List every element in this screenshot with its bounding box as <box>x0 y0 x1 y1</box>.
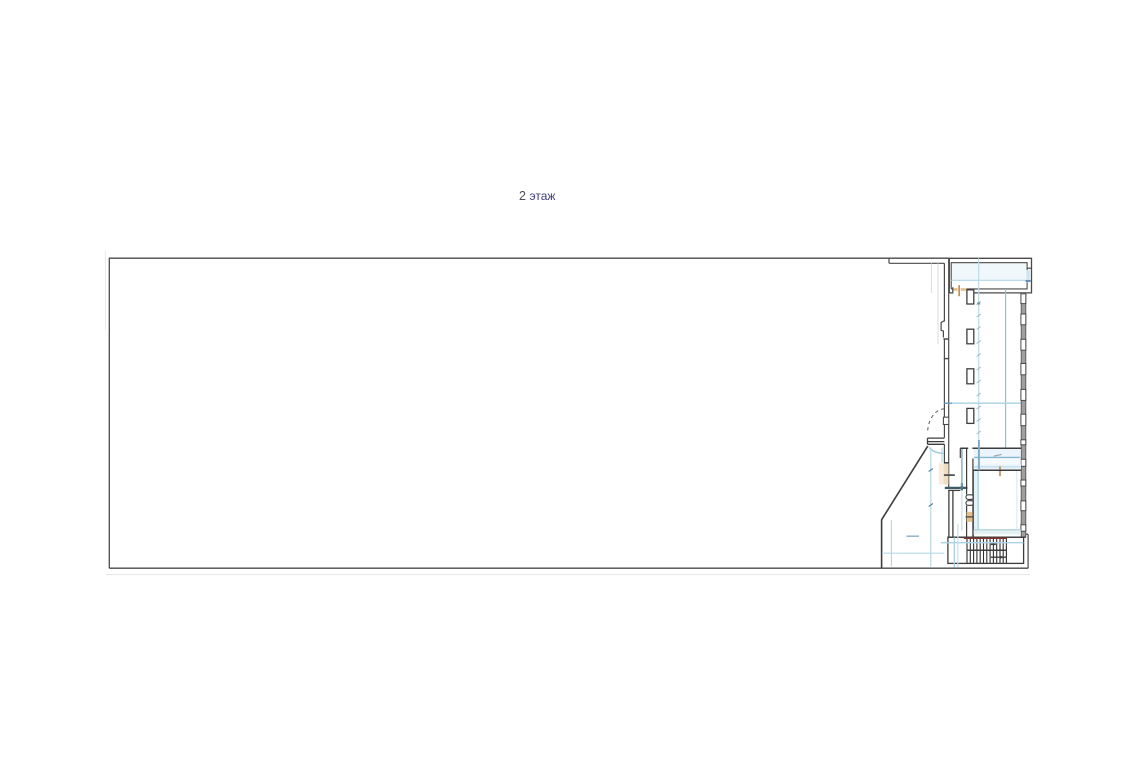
svg-text:этаж: этаж <box>530 189 556 203</box>
svg-text:2: 2 <box>519 189 526 203</box>
